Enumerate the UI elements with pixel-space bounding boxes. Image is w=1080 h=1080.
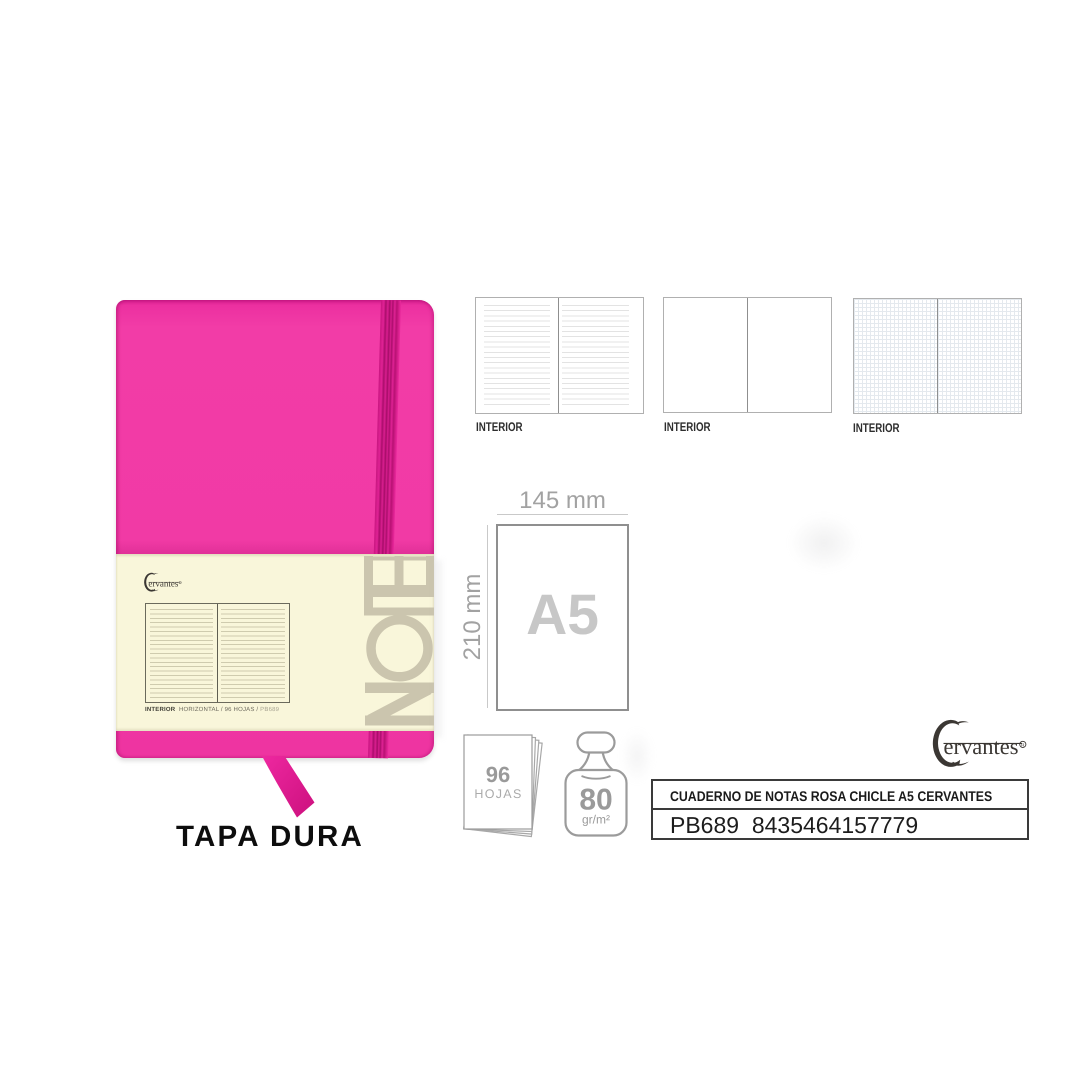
svg-text:HOJAS: HOJAS <box>474 787 522 801</box>
svg-text:gr/m²: gr/m² <box>582 813 610 827</box>
svg-text:96: 96 <box>486 762 510 787</box>
